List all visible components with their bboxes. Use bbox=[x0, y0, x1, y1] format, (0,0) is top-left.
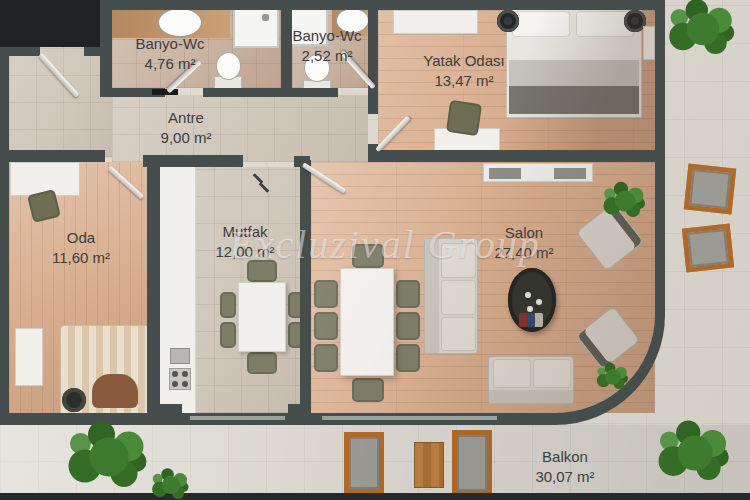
room-label-oda: Oda 11,60 m² bbox=[52, 228, 110, 268]
room-area: 4,76 m² bbox=[135, 54, 204, 74]
window-strip bbox=[190, 416, 285, 420]
room-area: 30,07 m² bbox=[535, 467, 594, 487]
room-area: 2,52 m² bbox=[292, 46, 361, 66]
terrace-chair bbox=[682, 224, 734, 273]
door-threshold bbox=[152, 89, 178, 95]
bush-icon bbox=[162, 476, 180, 494]
plant-icon bbox=[615, 191, 636, 212]
image-bottom-edge bbox=[0, 493, 750, 500]
room-label-antre: Antre 9,00 m² bbox=[161, 108, 212, 148]
room-area: 9,00 m² bbox=[161, 128, 212, 148]
watermark-text: Excluzival Group bbox=[229, 221, 541, 268]
room-name: Banyo-Wc bbox=[135, 34, 204, 54]
room-area: 11,60 m² bbox=[52, 248, 110, 268]
room-label-balkon: Balkon 30,07 m² bbox=[535, 447, 594, 487]
balcony-table bbox=[414, 442, 444, 488]
tree-icon bbox=[677, 435, 712, 470]
terrace-chair bbox=[684, 164, 737, 215]
tree-icon bbox=[687, 13, 720, 46]
room-name: Antre bbox=[161, 108, 212, 128]
room-label-banyo-2: Banyo-Wc 2,52 m² bbox=[292, 26, 361, 66]
balcony-chair bbox=[344, 432, 384, 494]
room-label-yatak-odasi: Yatak Odası 13,47 m² bbox=[423, 51, 504, 91]
room-name: Banyo-Wc bbox=[292, 26, 361, 46]
room-area: 13,47 m² bbox=[423, 71, 504, 91]
room-name: Balkon bbox=[535, 447, 594, 467]
wall-pillar bbox=[152, 404, 182, 416]
plant-icon bbox=[605, 369, 621, 385]
room-name: Oda bbox=[52, 228, 110, 248]
room-name: Yatak Odası bbox=[423, 51, 504, 71]
balcony-chair bbox=[452, 430, 492, 496]
tree-icon bbox=[90, 438, 129, 477]
wall-pillar bbox=[288, 404, 308, 416]
room-label-banyo-1: Banyo-Wc 4,76 m² bbox=[135, 34, 204, 74]
floor-plan: Banyo-Wc 4,76 m² Banyo-Wc 2,52 m² Yatak … bbox=[0, 0, 750, 500]
window-strip bbox=[322, 416, 497, 420]
